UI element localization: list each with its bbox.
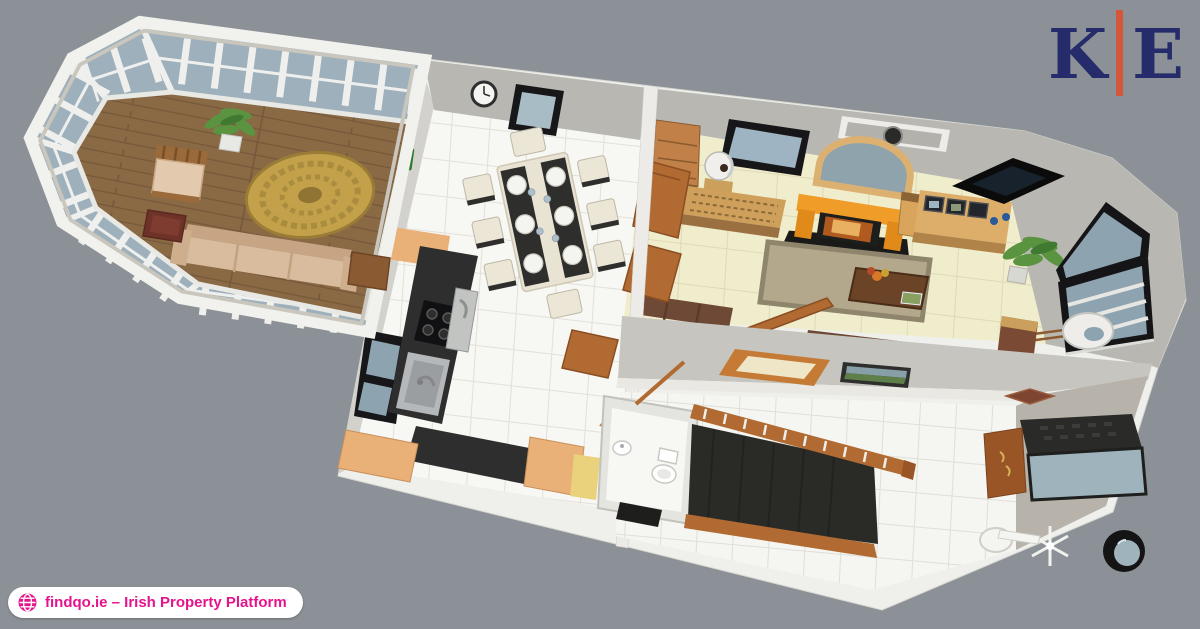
knob (990, 217, 998, 225)
porthole-mirror (1103, 530, 1145, 572)
door-leaf-wood (984, 428, 1026, 498)
plant-pot (219, 134, 242, 152)
kitchen-mat (570, 454, 600, 500)
agency-logo[interactable]: K E (1048, 10, 1184, 96)
globe-icon (18, 593, 37, 612)
logo-letter-e: E (1132, 21, 1184, 89)
plant-pot (1007, 266, 1028, 284)
floor-plan-3d (0, 0, 1200, 629)
floor-plan-stage (0, 0, 1200, 629)
logo-letter-k: K (1048, 21, 1107, 89)
knob (1002, 213, 1010, 221)
findqo-badge[interactable]: findqo.ie – Irish Property Platform (8, 587, 303, 618)
hand-basin (613, 441, 631, 455)
ottoman (143, 210, 186, 242)
wall-clock (472, 82, 496, 106)
logo-divider (1116, 10, 1123, 96)
badge-label: findqo.ie – Irish Property Platform (45, 594, 287, 611)
conservatory-sideboard (348, 252, 390, 290)
room-wc (598, 396, 698, 524)
magazine (901, 292, 922, 305)
armchair (149, 145, 208, 204)
